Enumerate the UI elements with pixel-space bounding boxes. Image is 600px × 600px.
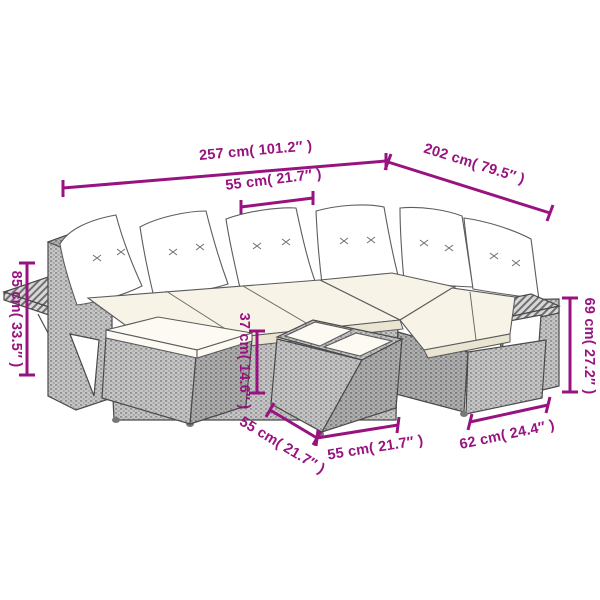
back-cushion-1 [60, 215, 142, 305]
dim-arm-height-label: 69 cm( 27.2″ ) [581, 298, 597, 395]
back-cushion-6 [464, 218, 539, 299]
dim-overall-height-label: 85 cm( 33.5″ ) [8, 271, 24, 368]
back-cushion-5 [400, 207, 473, 287]
dim-arm-height: 69 cm( 27.2″ ) [562, 298, 597, 395]
dim-overall-height: 85 cm( 33.5″ ) [8, 263, 35, 375]
diagram-canvas: 257 cm( 101.2″ ) 202 cm( 79.5″ ) 55 cm( … [0, 0, 600, 600]
back-cushion-4 [316, 205, 399, 284]
dim-overall-width: 257 cm( 101.2″ ) [63, 138, 386, 197]
product-dimension-diagram: 257 cm( 101.2″ ) 202 cm( 79.5″ ) 55 cm( … [0, 0, 600, 600]
dim-overall-width-label: 257 cm( 101.2″ ) [199, 138, 313, 164]
back-cushion-3 [226, 208, 315, 288]
dim-overall-depth-label: 202 cm( 79.5″ ) [422, 141, 527, 188]
sofa-illustration [4, 205, 559, 437]
dim-table-width-label: 55 cm( 21.7″ ) [326, 433, 424, 464]
back-cushion-2 [140, 211, 228, 294]
dim-table-height-label: 37 cm( 14.6″ ) [236, 313, 252, 410]
